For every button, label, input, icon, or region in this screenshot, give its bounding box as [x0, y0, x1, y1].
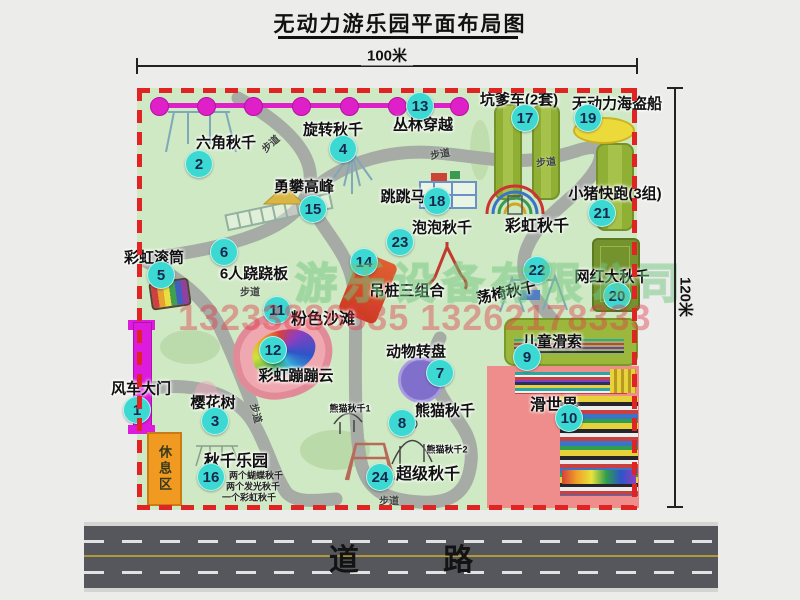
- dimension-label-width: 100米: [361, 45, 413, 66]
- title-underline: [278, 36, 518, 39]
- item-label-21: 小猪快跑(3组): [568, 183, 661, 204]
- dimension-tick-right-top: [667, 87, 683, 89]
- dimension-tick-top-right: [636, 58, 638, 74]
- item-badge-8: 8: [388, 409, 416, 437]
- item-badge-21: 21: [588, 199, 616, 227]
- item-badge-18: 18: [423, 187, 451, 215]
- panda-swing-icons: [334, 413, 432, 464]
- item-badge-17: 17: [511, 104, 539, 132]
- zipline-dot: [292, 97, 311, 116]
- equipment-label-0: 彩虹秋千: [505, 212, 569, 236]
- jumping-horse-red-icon: [431, 173, 447, 181]
- item-label-8: 熊猫秋千: [415, 400, 475, 421]
- jumping-horse-green-icon: [450, 171, 460, 179]
- park-plan-screenshot: 无动力游乐园平面布局图 100米 120米: [0, 0, 800, 600]
- zipline-dot: [150, 97, 169, 116]
- dimension-tick-right-bottom: [667, 506, 683, 508]
- page-title: 无动力游乐园平面布局图: [0, 8, 800, 38]
- zipline-dot: [197, 97, 216, 116]
- footpath-label-2: 步道: [535, 153, 556, 170]
- boundary-left: [137, 88, 142, 510]
- boundary-bottom: [137, 505, 637, 510]
- equipment-label-2: 熊猫秋千2: [426, 443, 467, 456]
- item-label-2: 六角秋千: [196, 132, 256, 153]
- item-badge-15: 15: [299, 195, 327, 223]
- item-badge-10: 10: [555, 404, 583, 432]
- zipline-dot: [244, 97, 263, 116]
- item-label-15: 勇攀高峰: [274, 176, 334, 197]
- item-label-6: 6人跷跷板: [220, 263, 288, 284]
- swing-park-note-2: 一个彩虹秋千: [222, 491, 276, 504]
- item-badge-12: 12: [259, 336, 287, 364]
- item-label-24: 超级秋千: [396, 460, 460, 484]
- equipment-label-1: 熊猫秋千1: [329, 402, 370, 415]
- item-badge-6: 6: [210, 238, 238, 266]
- item-badge-9: 9: [513, 343, 541, 371]
- item-label-4: 旋转秋千: [303, 119, 363, 140]
- zipline-dot: [340, 97, 359, 116]
- item-label-12: 彩虹蹦蹦云: [258, 365, 333, 386]
- item-label-18: 跳跳马: [380, 186, 425, 207]
- dimension-tick-top-left: [136, 58, 138, 74]
- item-badge-19: 19: [574, 104, 602, 132]
- boundary-right: [632, 88, 637, 510]
- item-badge-5: 5: [147, 261, 175, 289]
- item-badge-16: 16: [197, 463, 225, 491]
- item-badge-4: 4: [329, 135, 357, 163]
- item-badge-3: 3: [201, 407, 229, 435]
- dimension-label-height: 120米: [676, 277, 697, 317]
- item-badge-13: 13: [406, 92, 434, 120]
- item-badge-7: 7: [426, 359, 454, 387]
- item-badge-24: 24: [366, 463, 394, 491]
- item-label-23: 泡泡秋千: [412, 217, 472, 238]
- phone-watermark: 13233886535 13262178333: [178, 297, 651, 339]
- item-badge-2: 2: [185, 150, 213, 178]
- rainbow-swing-arcs-icon: [487, 186, 543, 214]
- boundary-top: [137, 88, 637, 93]
